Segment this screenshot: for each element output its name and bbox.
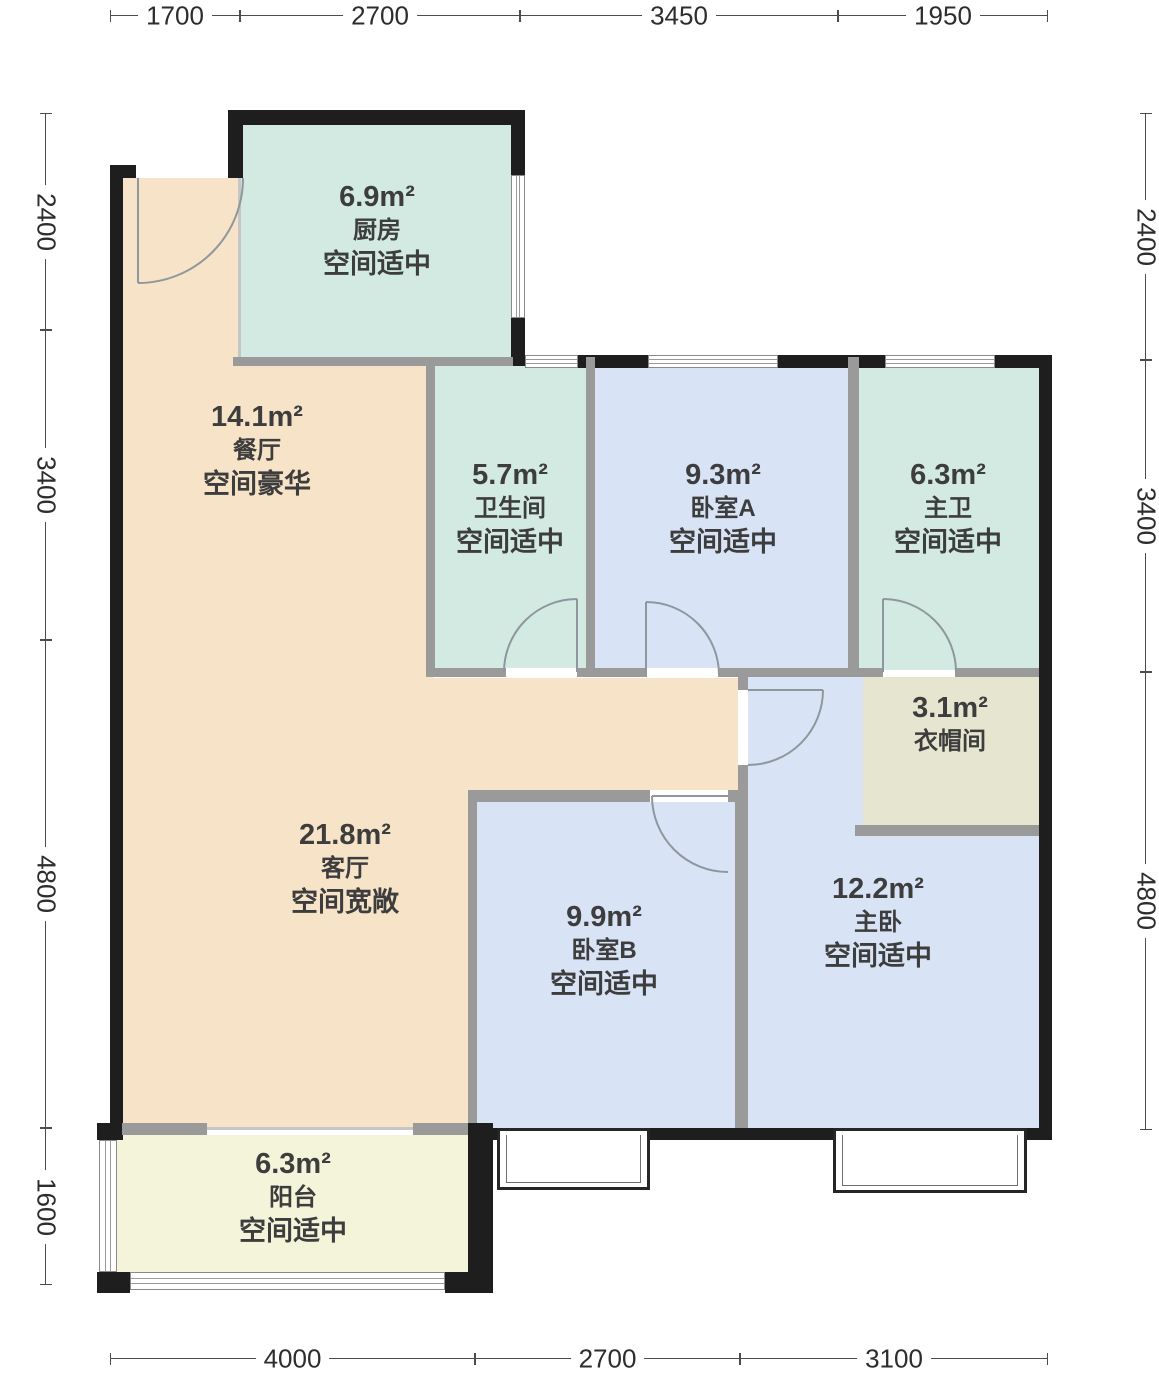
dimension-label: 4000 — [256, 1344, 330, 1375]
dimension-label: 2700 — [571, 1344, 645, 1375]
room-name: 主卫 — [894, 494, 1002, 525]
dimension-top-4: 1950 — [838, 15, 1048, 16]
dimension-left-1: 2400 — [45, 113, 46, 330]
room-area: 5.7m² — [456, 457, 564, 494]
dimension-top-1: 1700 — [110, 15, 240, 16]
dimension-label: 2400 — [31, 185, 62, 259]
room-label-balcony: 6.3m² 阳台 空间适中 — [239, 1146, 347, 1248]
room-name: 客厅 — [291, 854, 399, 885]
room-note: 空间适中 — [550, 967, 658, 1002]
room-label-bedroom-a: 9.3m² 卧室A 空间适中 — [669, 457, 777, 559]
room-label-bathroom: 5.7m² 卫生间 空间适中 — [456, 457, 564, 559]
dimension-bottom-1: 4000 — [110, 1358, 475, 1359]
dimension-top-2: 2700 — [240, 15, 520, 16]
room-note: 空间适中 — [824, 939, 932, 974]
bedroom-b-door — [652, 796, 728, 872]
room-name: 厨房 — [323, 216, 431, 247]
room-name: 主卧 — [824, 908, 932, 939]
dimension-bottom-3: 3100 — [740, 1358, 1048, 1359]
dimension-right-2: 3400 — [1145, 360, 1146, 672]
master-bath-door — [883, 599, 956, 672]
floor-plan: 6.9m² 厨房 空间适中 14.1m² 餐厅 空间豪华 5.7m² 卫生间 空… — [0, 0, 1159, 1400]
room-area: 9.9m² — [550, 899, 658, 936]
room-area: 6.3m² — [894, 457, 1002, 494]
dimension-label: 4800 — [31, 847, 62, 921]
master-suite-door — [748, 690, 823, 765]
room-area: 14.1m² — [203, 399, 311, 436]
bathroom-door — [504, 599, 577, 672]
room-name: 卧室A — [669, 494, 777, 525]
room-label-cloakroom: 3.1m² 衣帽间 — [912, 690, 988, 758]
dimension-right-3: 4800 — [1145, 672, 1146, 1130]
room-note: 空间适中 — [456, 525, 564, 560]
room-note: 空间豪华 — [203, 467, 311, 502]
room-note: 空间适中 — [894, 525, 1002, 560]
dimension-label: 1700 — [138, 1, 212, 32]
dimension-left-3: 4800 — [45, 640, 46, 1128]
room-label-living: 21.8m² 客厅 空间宽敞 — [291, 817, 399, 919]
room-name: 餐厅 — [203, 436, 311, 467]
dimension-left-2: 3400 — [45, 330, 46, 640]
dimension-label: 2700 — [343, 1, 417, 32]
room-label-master-bath: 6.3m² 主卫 空间适中 — [894, 457, 1002, 559]
room-area: 21.8m² — [291, 817, 399, 854]
room-note: 空间适中 — [239, 1214, 347, 1249]
door-openings — [650, 690, 748, 802]
room-label-bedroom-b: 9.9m² 卧室B 空间适中 — [550, 899, 658, 1001]
room-name: 阳台 — [239, 1183, 347, 1214]
dimension-bottom-2: 2700 — [475, 1358, 740, 1359]
dimension-label: 2400 — [1131, 200, 1159, 274]
dimension-left-4: 1600 — [45, 1128, 46, 1285]
room-name: 卧室B — [550, 936, 658, 967]
room-note: 空间适中 — [669, 525, 777, 560]
room-note: 空间宽敞 — [291, 885, 399, 920]
dimension-label: 4800 — [1131, 864, 1159, 938]
dimension-label: 1600 — [31, 1170, 62, 1244]
room-note: 空间适中 — [323, 247, 431, 282]
entry-door — [138, 178, 243, 283]
room-label-dining: 14.1m² 餐厅 空间豪华 — [203, 399, 311, 501]
room-area: 6.3m² — [239, 1146, 347, 1183]
room-area: 3.1m² — [912, 690, 988, 727]
room-label-master-bedroom: 12.2m² 主卧 空间适中 — [824, 871, 932, 973]
dimension-label: 1950 — [906, 1, 980, 32]
dimension-label: 3100 — [857, 1344, 931, 1375]
room-name: 卫生间 — [456, 494, 564, 525]
bedroom-a-door — [646, 602, 719, 675]
dimension-label: 3450 — [642, 1, 716, 32]
room-area: 9.3m² — [669, 457, 777, 494]
dimension-top-3: 3450 — [520, 15, 838, 16]
room-label-kitchen: 6.9m² 厨房 空间适中 — [323, 179, 431, 281]
dimension-label: 3400 — [31, 448, 62, 522]
dimension-label: 3400 — [1131, 479, 1159, 553]
room-area: 12.2m² — [824, 871, 932, 908]
room-area: 6.9m² — [323, 179, 431, 216]
room-name: 衣帽间 — [912, 727, 988, 758]
dimension-right-1: 2400 — [1145, 113, 1146, 360]
